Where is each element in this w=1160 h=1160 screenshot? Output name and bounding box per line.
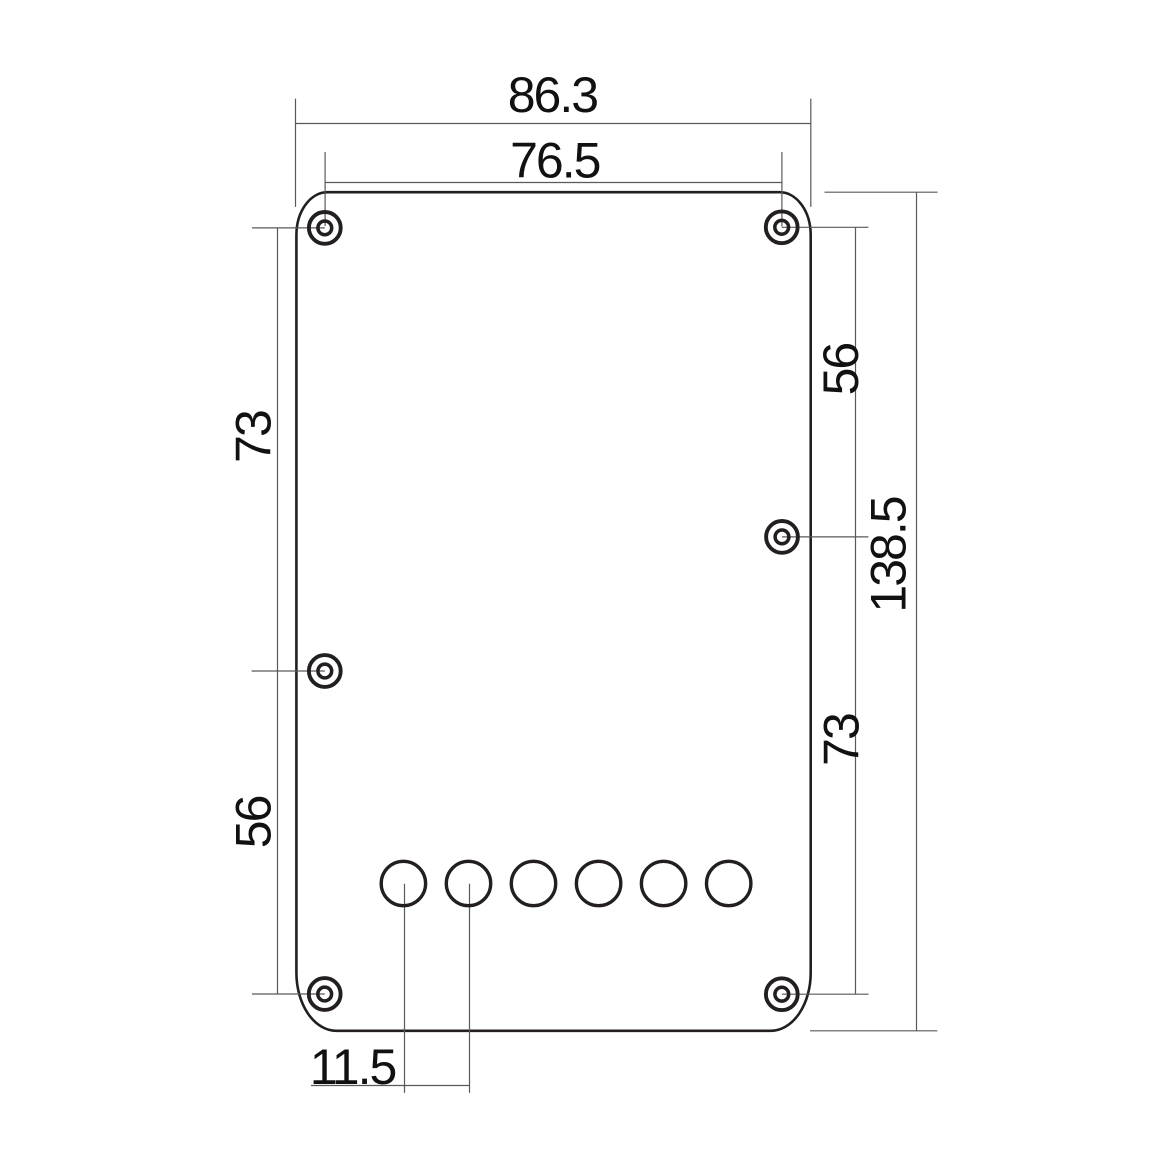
svg-text:73: 73: [225, 411, 281, 463]
svg-text:138.5: 138.5: [861, 497, 917, 612]
svg-text:76.5: 76.5: [510, 133, 600, 189]
svg-text:56: 56: [225, 796, 281, 848]
svg-text:56: 56: [813, 344, 869, 396]
svg-text:11.5: 11.5: [310, 1039, 396, 1095]
svg-text:86.3: 86.3: [508, 67, 598, 123]
svg-text:73: 73: [813, 714, 869, 766]
